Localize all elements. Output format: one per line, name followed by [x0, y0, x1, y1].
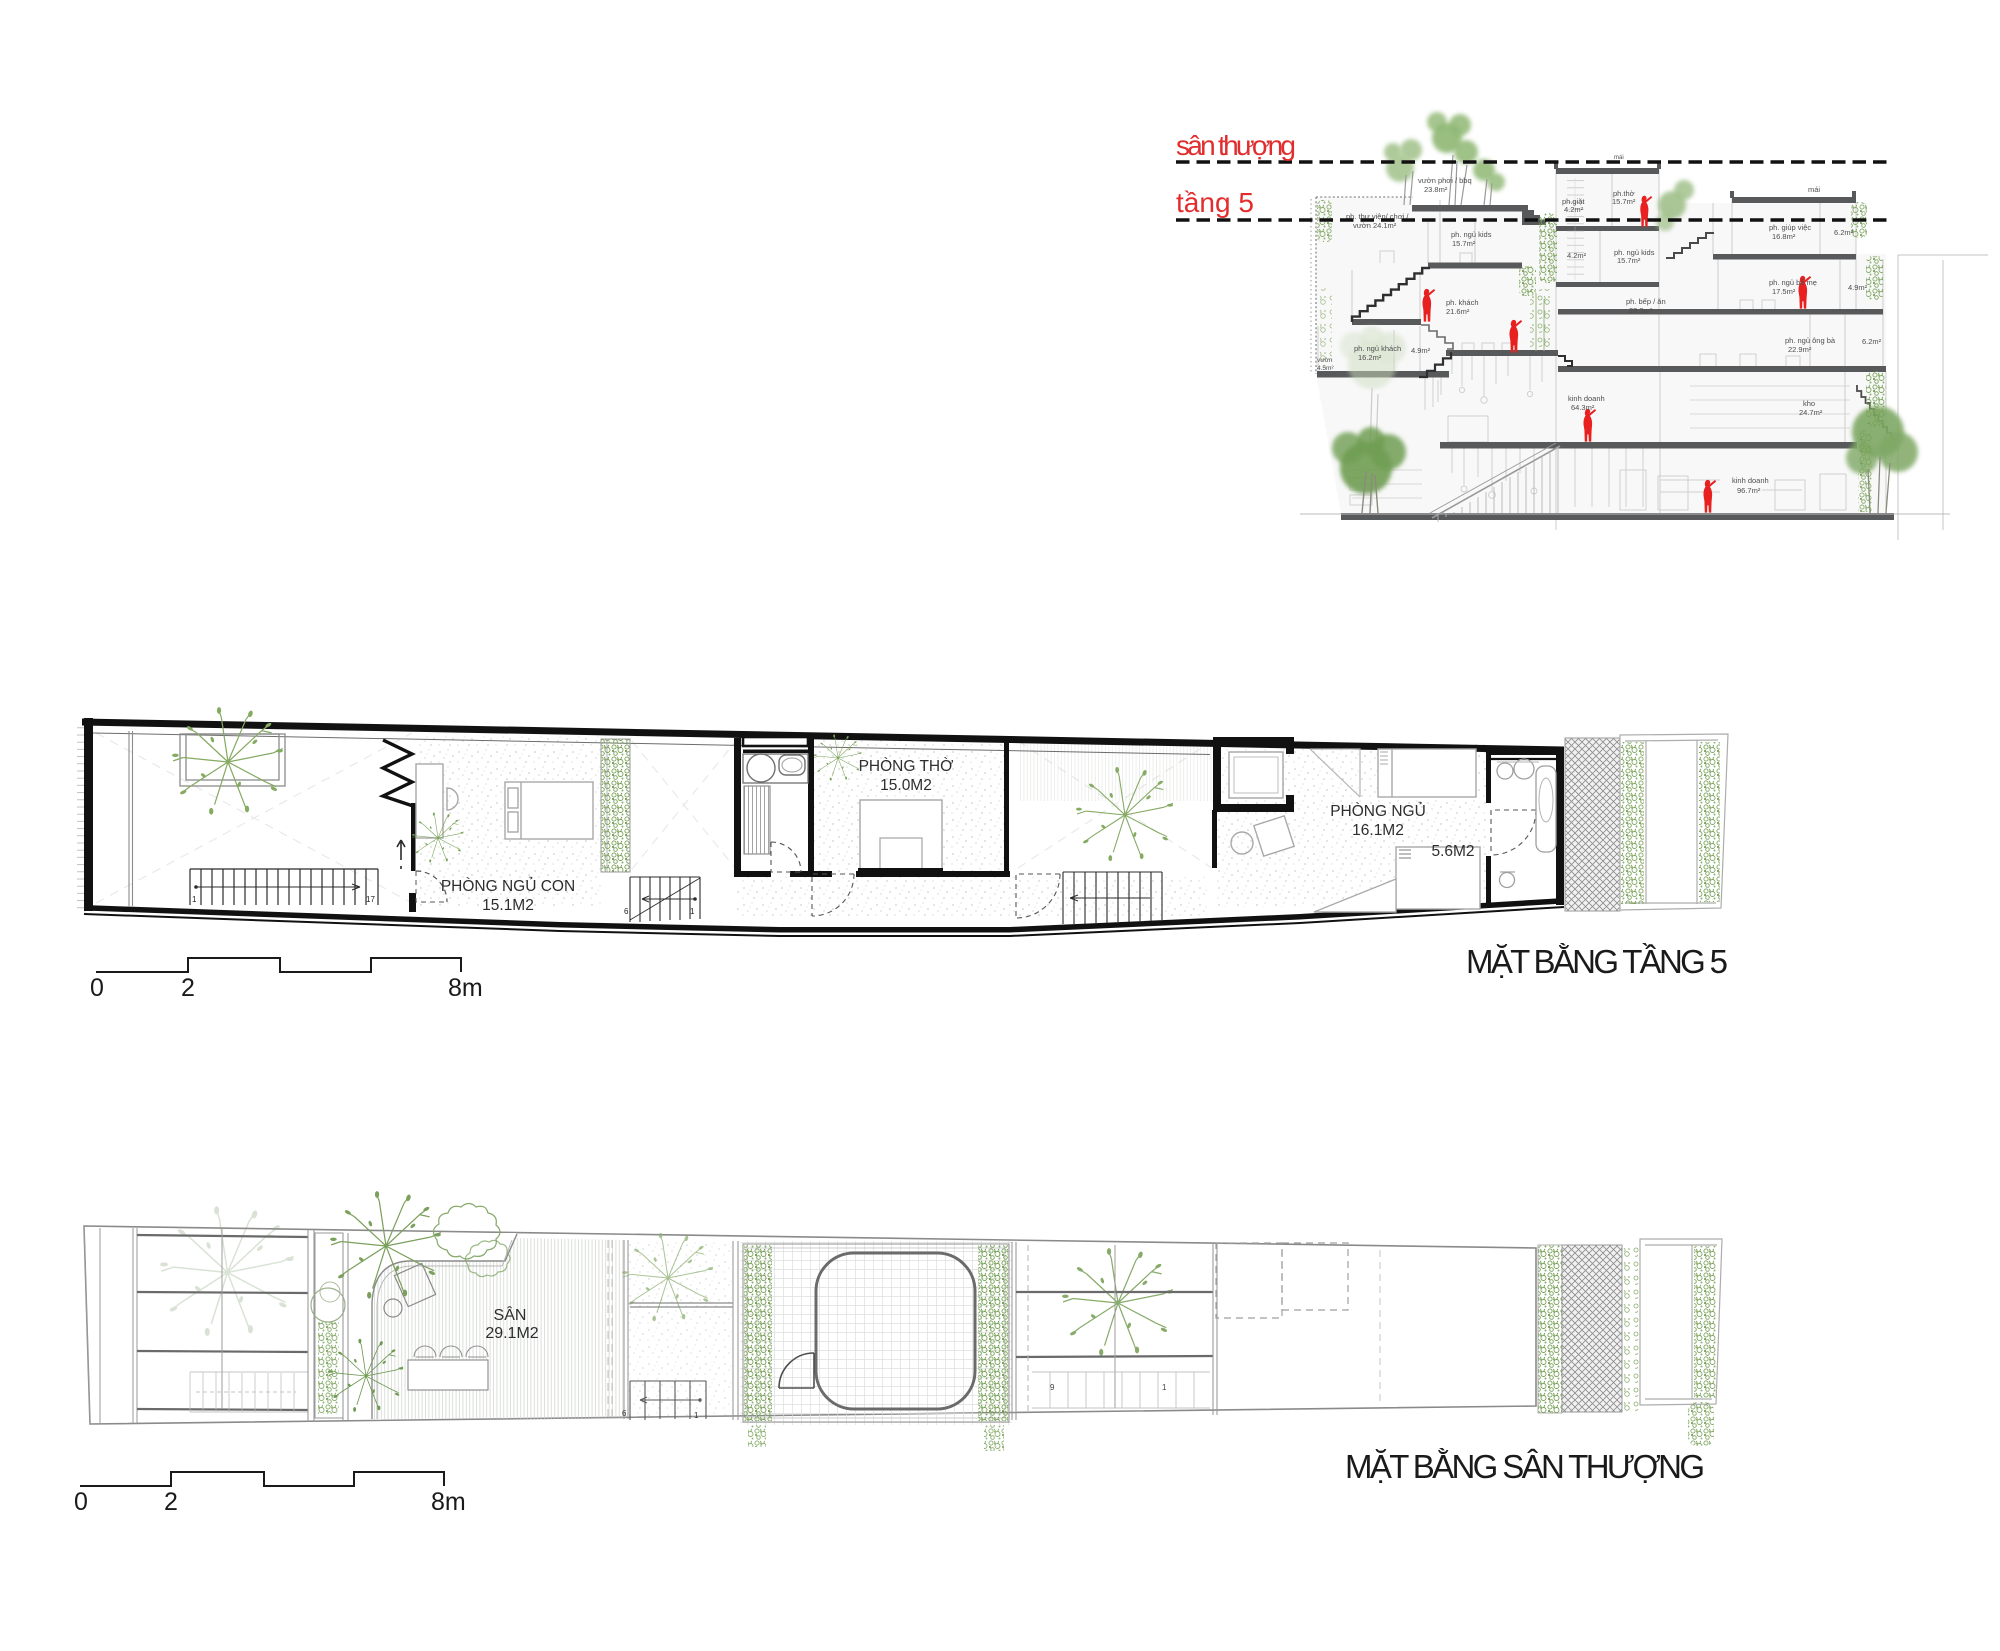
svg-text:ph. ngủ bố mẹ: ph. ngủ bố mẹ: [1769, 278, 1817, 287]
svg-text:2: 2: [181, 974, 195, 1002]
svg-text:21.6m²: 21.6m²: [1446, 307, 1470, 316]
svg-text:ph. giúp việc: ph. giúp việc: [1769, 223, 1811, 232]
svg-text:kinh doanh: kinh doanh: [1732, 476, 1769, 485]
svg-text:0: 0: [74, 1488, 88, 1516]
svg-text:SÂN: SÂN: [494, 1305, 527, 1324]
svg-text:kho: kho: [1803, 399, 1815, 408]
svg-text:PHÒNG NGỦ CON: PHÒNG NGỦ CON: [441, 877, 575, 895]
svg-text:MẶT BẰNG TẦNG 5: MẶT BẰNG TẦNG 5: [1466, 943, 1728, 980]
svg-text:4.2m²: 4.2m²: [1567, 251, 1587, 260]
svg-text:5.6M2: 5.6M2: [1431, 843, 1474, 860]
svg-text:1: 1: [694, 1411, 699, 1420]
svg-text:ph. ngủ khách: ph. ngủ khách: [1354, 344, 1401, 353]
svg-text:17: 17: [366, 895, 375, 904]
svg-text:15.7m²: 15.7m²: [1612, 197, 1636, 206]
svg-text:6: 6: [622, 1409, 627, 1418]
svg-text:6.2m²: 6.2m²: [1834, 228, 1854, 237]
svg-text:28.3m²: 28.3m²: [1629, 306, 1653, 315]
svg-text:23.8m²: 23.8m²: [1424, 185, 1448, 194]
svg-text:ph. bếp / ăn: ph. bếp / ăn: [1626, 297, 1666, 306]
svg-text:ph. thư viện/ chơi /: ph. thư viện/ chơi /: [1346, 212, 1409, 221]
svg-text:24.7m²: 24.7m²: [1799, 408, 1823, 417]
svg-text:PHÒNG NGỦ: PHÒNG NGỦ: [1330, 802, 1426, 820]
svg-text:9: 9: [1050, 1383, 1055, 1392]
svg-text:PHÒNG THỜ: PHÒNG THỜ: [859, 758, 954, 775]
svg-text:8m: 8m: [431, 1488, 466, 1516]
svg-text:17.5m²: 17.5m²: [1772, 287, 1796, 296]
svg-text:29.1M2: 29.1M2: [485, 1325, 538, 1342]
svg-text:kinh doanh: kinh doanh: [1568, 394, 1605, 403]
svg-text:15.1M2: 15.1M2: [482, 897, 534, 914]
svg-text:4.9m²: 4.9m²: [1411, 346, 1431, 355]
svg-text:ph. ngủ kids: ph. ngủ kids: [1451, 230, 1492, 239]
svg-text:96.7m²: 96.7m²: [1737, 486, 1761, 495]
svg-text:1: 1: [192, 895, 197, 904]
svg-text:1: 1: [690, 907, 695, 916]
svg-text:6.2m²: 6.2m²: [1862, 337, 1882, 346]
svg-text:64.3m²: 64.3m²: [1571, 403, 1595, 412]
svg-text:16.1M2: 16.1M2: [1352, 822, 1404, 839]
svg-text:16.8m²: 16.8m²: [1772, 232, 1796, 241]
svg-text:6: 6: [624, 907, 629, 916]
svg-text:4.5m²: 4.5m²: [1317, 365, 1334, 372]
svg-text:2: 2: [164, 1488, 178, 1516]
svg-text:tầng 5: tầng 5: [1176, 187, 1254, 218]
svg-text:mái: mái: [1808, 185, 1820, 194]
svg-text:15.0M2: 15.0M2: [880, 777, 932, 794]
svg-text:vườn phơi / bbq: vườn phơi / bbq: [1418, 176, 1472, 185]
svg-text:mái: mái: [1614, 155, 1624, 161]
svg-text:ph. ngủ ông bà: ph. ngủ ông bà: [1785, 336, 1836, 345]
svg-text:8m: 8m: [448, 974, 483, 1002]
svg-text:MẶT BẰNG SÂN THƯỢNG: MẶT BẰNG SÂN THƯỢNG: [1345, 1448, 1705, 1485]
svg-text:ph. khách: ph. khách: [1446, 298, 1479, 307]
svg-text:15.7m²: 15.7m²: [1452, 239, 1476, 248]
svg-text:4.2m²: 4.2m²: [1564, 205, 1584, 214]
svg-text:15.7m²: 15.7m²: [1617, 256, 1641, 265]
svg-text:4.9m²: 4.9m²: [1848, 283, 1868, 292]
svg-text:vườn 24.1m²: vườn 24.1m²: [1353, 221, 1397, 230]
svg-text:vườn: vườn: [1317, 357, 1333, 364]
svg-text:sân thượng: sân thượng: [1176, 130, 1296, 161]
svg-text:16.2m²: 16.2m²: [1358, 353, 1382, 362]
svg-text:0: 0: [90, 974, 104, 1002]
svg-text:22.9m²: 22.9m²: [1788, 345, 1812, 354]
svg-text:1: 1: [1162, 1383, 1167, 1392]
